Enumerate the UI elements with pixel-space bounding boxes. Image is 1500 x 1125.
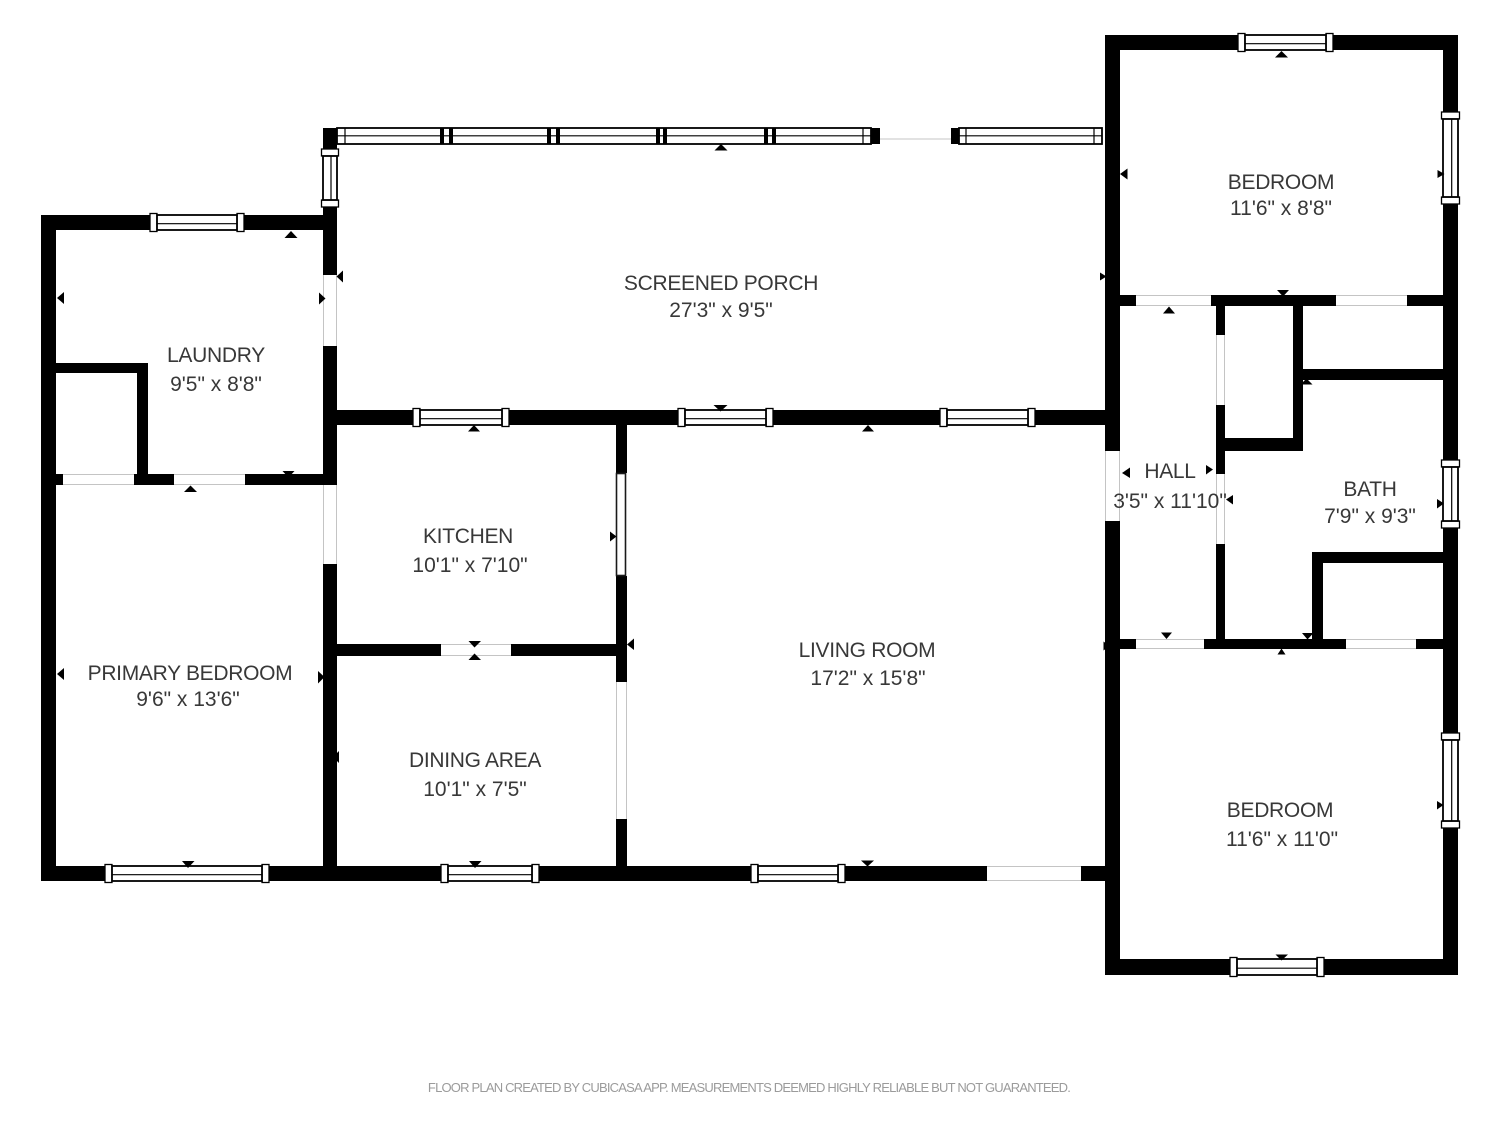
- svg-text:17'2" x 15'8": 17'2" x 15'8": [810, 667, 925, 690]
- svg-text:FLOOR PLAN CREATED BY CUBICASA: FLOOR PLAN CREATED BY CUBICASA APP. MEAS…: [428, 1080, 1070, 1095]
- svg-text:BEDROOM: BEDROOM: [1227, 799, 1333, 822]
- svg-text:11'6" x 8'8": 11'6" x 8'8": [1230, 197, 1332, 220]
- svg-text:10'1" x 7'5": 10'1" x 7'5": [423, 778, 527, 801]
- svg-text:BATH: BATH: [1343, 478, 1396, 501]
- svg-text:3'5" x 11'10": 3'5" x 11'10": [1113, 490, 1227, 513]
- svg-text:DINING AREA: DINING AREA: [409, 749, 541, 772]
- svg-text:PRIMARY BEDROOM: PRIMARY BEDROOM: [88, 662, 293, 685]
- svg-text:10'1" x 7'10": 10'1" x 7'10": [412, 554, 527, 577]
- svg-text:LIVING ROOM: LIVING ROOM: [799, 639, 936, 662]
- svg-text:27'3" x 9'5": 27'3" x 9'5": [669, 299, 773, 322]
- svg-text:SCREENED PORCH: SCREENED PORCH: [624, 272, 818, 295]
- svg-text:LAUNDRY: LAUNDRY: [167, 344, 265, 367]
- svg-text:11'6" x 11'0": 11'6" x 11'0": [1226, 828, 1338, 851]
- svg-text:BEDROOM: BEDROOM: [1228, 171, 1334, 194]
- svg-text:9'5" x 8'8": 9'5" x 8'8": [170, 373, 262, 396]
- svg-text:KITCHEN: KITCHEN: [423, 525, 513, 548]
- svg-text:HALL: HALL: [1144, 460, 1195, 483]
- svg-text:7'9" x 9'3": 7'9" x 9'3": [1324, 505, 1416, 528]
- svg-text:9'6" x 13'6": 9'6" x 13'6": [136, 688, 240, 711]
